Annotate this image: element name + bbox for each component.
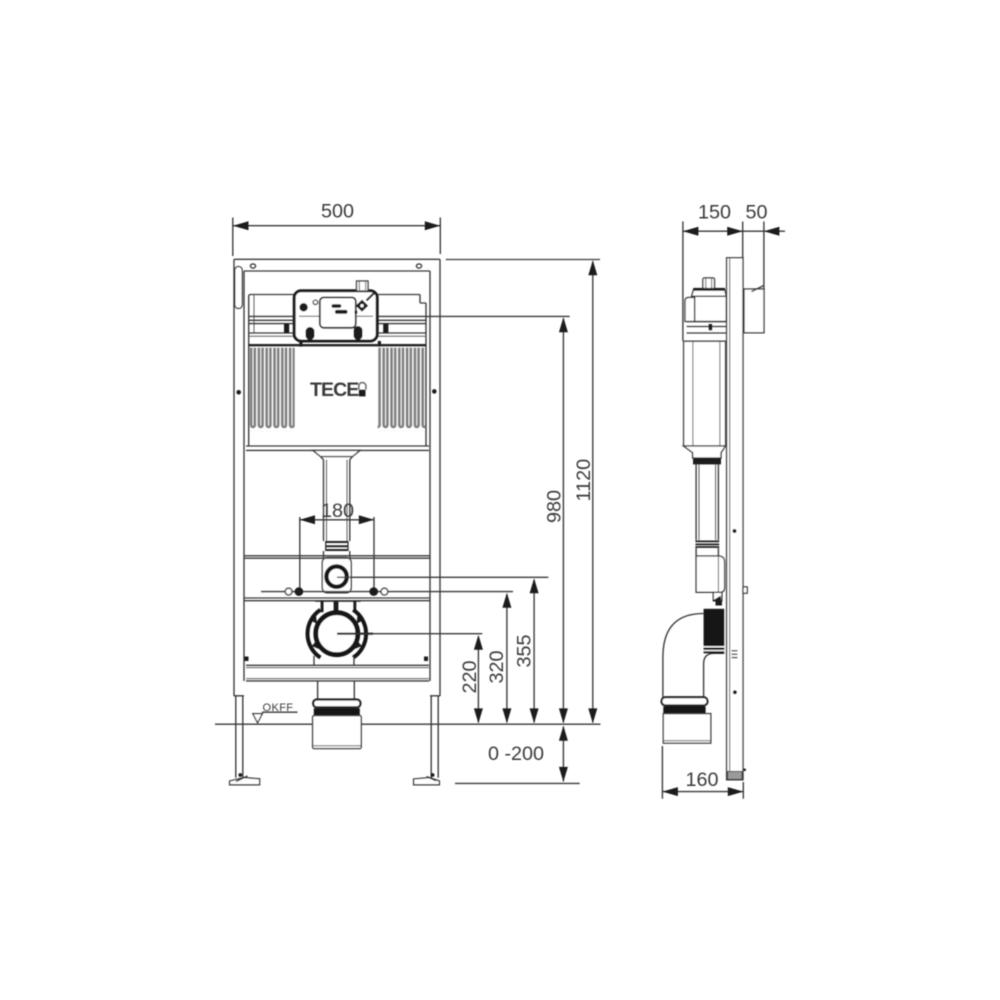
svg-text:980: 980 xyxy=(543,490,565,523)
svg-text:TECE: TECE xyxy=(310,379,359,401)
svg-text:320: 320 xyxy=(486,650,508,683)
svg-text:220: 220 xyxy=(459,660,481,693)
svg-text:0 -200: 0 -200 xyxy=(488,743,544,765)
svg-text:160: 160 xyxy=(685,769,718,791)
svg-text:500: 500 xyxy=(321,201,354,223)
svg-text:150: 150 xyxy=(698,202,731,224)
svg-text:180: 180 xyxy=(321,500,354,522)
svg-text:355: 355 xyxy=(513,634,535,667)
svg-text:50: 50 xyxy=(745,202,767,224)
svg-text:1120: 1120 xyxy=(573,459,595,502)
